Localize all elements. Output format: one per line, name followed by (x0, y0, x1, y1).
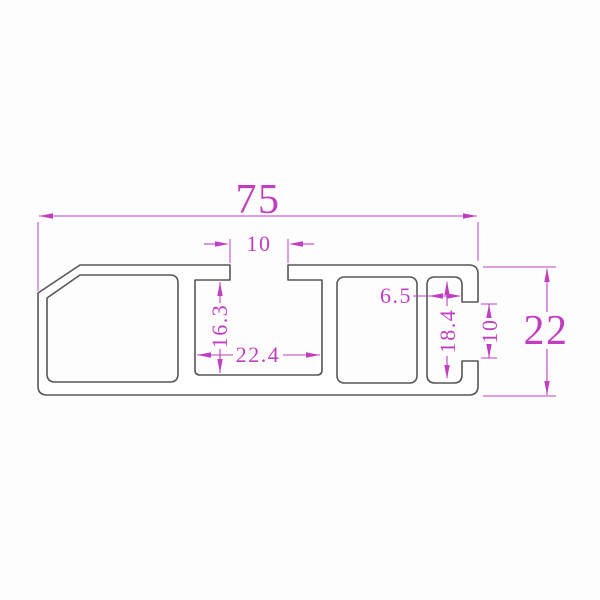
arrowhead (444, 281, 449, 295)
arrowhead (197, 352, 211, 357)
arrowhead (217, 359, 222, 373)
arrowhead (39, 213, 53, 218)
left-cavity-outline (47, 275, 178, 382)
drawing-canvas: 75 10 22 16.3 22.4 (0, 0, 600, 600)
dim-text: 22.4 (236, 342, 281, 367)
arrowhead (486, 344, 491, 358)
technical-drawing: 75 10 22 16.3 22.4 (0, 0, 600, 600)
dim-center-channel-depth: 16.3 (207, 282, 232, 373)
arrowhead (429, 293, 443, 298)
arrowhead (289, 241, 303, 246)
dim-text: 22 (524, 308, 569, 354)
dim-text: 10 (247, 231, 272, 256)
dim-text: 10 (477, 319, 502, 344)
arrowhead (486, 304, 491, 318)
arrowhead (444, 365, 449, 379)
arrowhead (544, 381, 549, 395)
dim-text: 16.3 (207, 304, 232, 349)
dim-text: 75 (236, 177, 281, 223)
arrowhead (544, 268, 549, 282)
arrowhead (215, 241, 229, 246)
arrowhead (463, 213, 477, 218)
dim-text: 6.5 (380, 283, 412, 308)
dim-text: 18.4 (435, 309, 460, 354)
dim-right-opening-height: 10 (477, 304, 502, 358)
profile-outline-group (38, 265, 478, 395)
arrowhead (217, 282, 222, 296)
dim-top-slot-width: 10 (204, 231, 314, 263)
arrowhead (306, 352, 320, 357)
